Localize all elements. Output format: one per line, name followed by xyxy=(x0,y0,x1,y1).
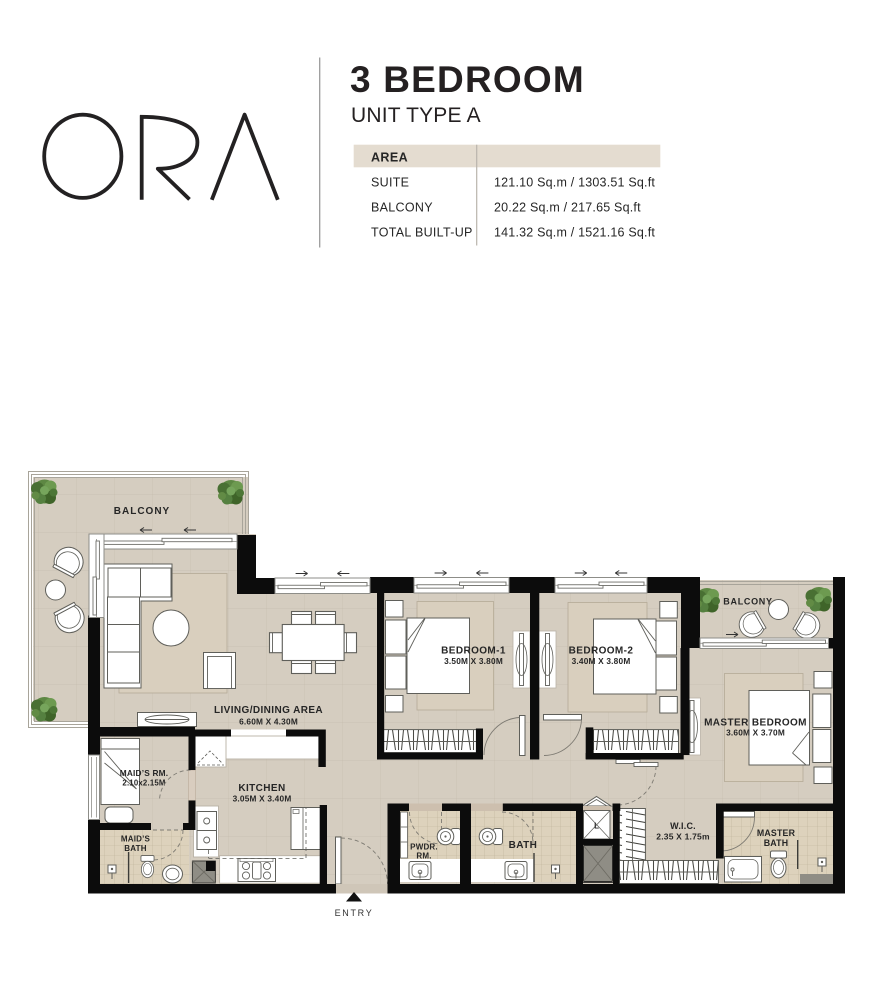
svg-text:L: L xyxy=(594,822,599,831)
svg-text:2.35 X 1.75m: 2.35 X 1.75m xyxy=(656,832,710,842)
svg-text:3.05M X 3.40M: 3.05M X 3.40M xyxy=(233,794,292,804)
svg-text:3.60M X 3.70M: 3.60M X 3.70M xyxy=(726,728,785,738)
svg-text:BEDROOM-1: BEDROOM-1 xyxy=(441,646,506,657)
svg-text:BATH: BATH xyxy=(509,840,538,851)
svg-text:RM.: RM. xyxy=(416,852,431,861)
svg-text:121.10 Sq.m / 1303.51 Sq.ft: 121.10 Sq.m / 1303.51 Sq.ft xyxy=(494,176,655,190)
svg-text:BATH: BATH xyxy=(124,844,146,853)
svg-text:UNIT TYPE A: UNIT TYPE A xyxy=(351,104,481,127)
svg-text:SUITE: SUITE xyxy=(371,176,409,190)
svg-text:3 BEDROOM: 3 BEDROOM xyxy=(350,59,585,100)
svg-text:BALCONY: BALCONY xyxy=(371,201,433,215)
svg-text:BEDROOM-2: BEDROOM-2 xyxy=(569,646,634,657)
svg-text:BALCONY: BALCONY xyxy=(723,597,772,607)
svg-text:2.10x2.15M: 2.10x2.15M xyxy=(122,779,165,788)
svg-text:MASTER: MASTER xyxy=(757,828,796,838)
svg-text:TOTAL BUILT-UP: TOTAL BUILT-UP xyxy=(371,226,473,240)
svg-text:LIVING/DINING AREA: LIVING/DINING AREA xyxy=(214,705,323,716)
svg-text:AREA: AREA xyxy=(371,151,408,165)
svg-text:BALCONY: BALCONY xyxy=(114,506,170,517)
svg-text:ENTRY: ENTRY xyxy=(335,908,374,918)
svg-text:BATH: BATH xyxy=(764,838,789,848)
svg-text:MAID’S: MAID’S xyxy=(121,835,151,844)
svg-text:PWDR.: PWDR. xyxy=(410,843,438,852)
svg-text:3.40M X 3.80M: 3.40M X 3.80M xyxy=(572,656,631,666)
svg-text:6.60M X 4.30M: 6.60M X 4.30M xyxy=(239,717,298,727)
svg-text:W.I.C.: W.I.C. xyxy=(670,821,696,831)
svg-text:20.22 Sq.m / 217.65 Sq.ft: 20.22 Sq.m / 217.65 Sq.ft xyxy=(494,201,641,215)
svg-text:141.32 Sq.m / 1521.16 Sq.ft: 141.32 Sq.m / 1521.16 Sq.ft xyxy=(494,226,655,240)
svg-text:MAID’S RM.: MAID’S RM. xyxy=(120,768,169,778)
svg-text:3.50M X 3.80M: 3.50M X 3.80M xyxy=(444,656,503,666)
svg-text:KITCHEN: KITCHEN xyxy=(238,783,285,794)
